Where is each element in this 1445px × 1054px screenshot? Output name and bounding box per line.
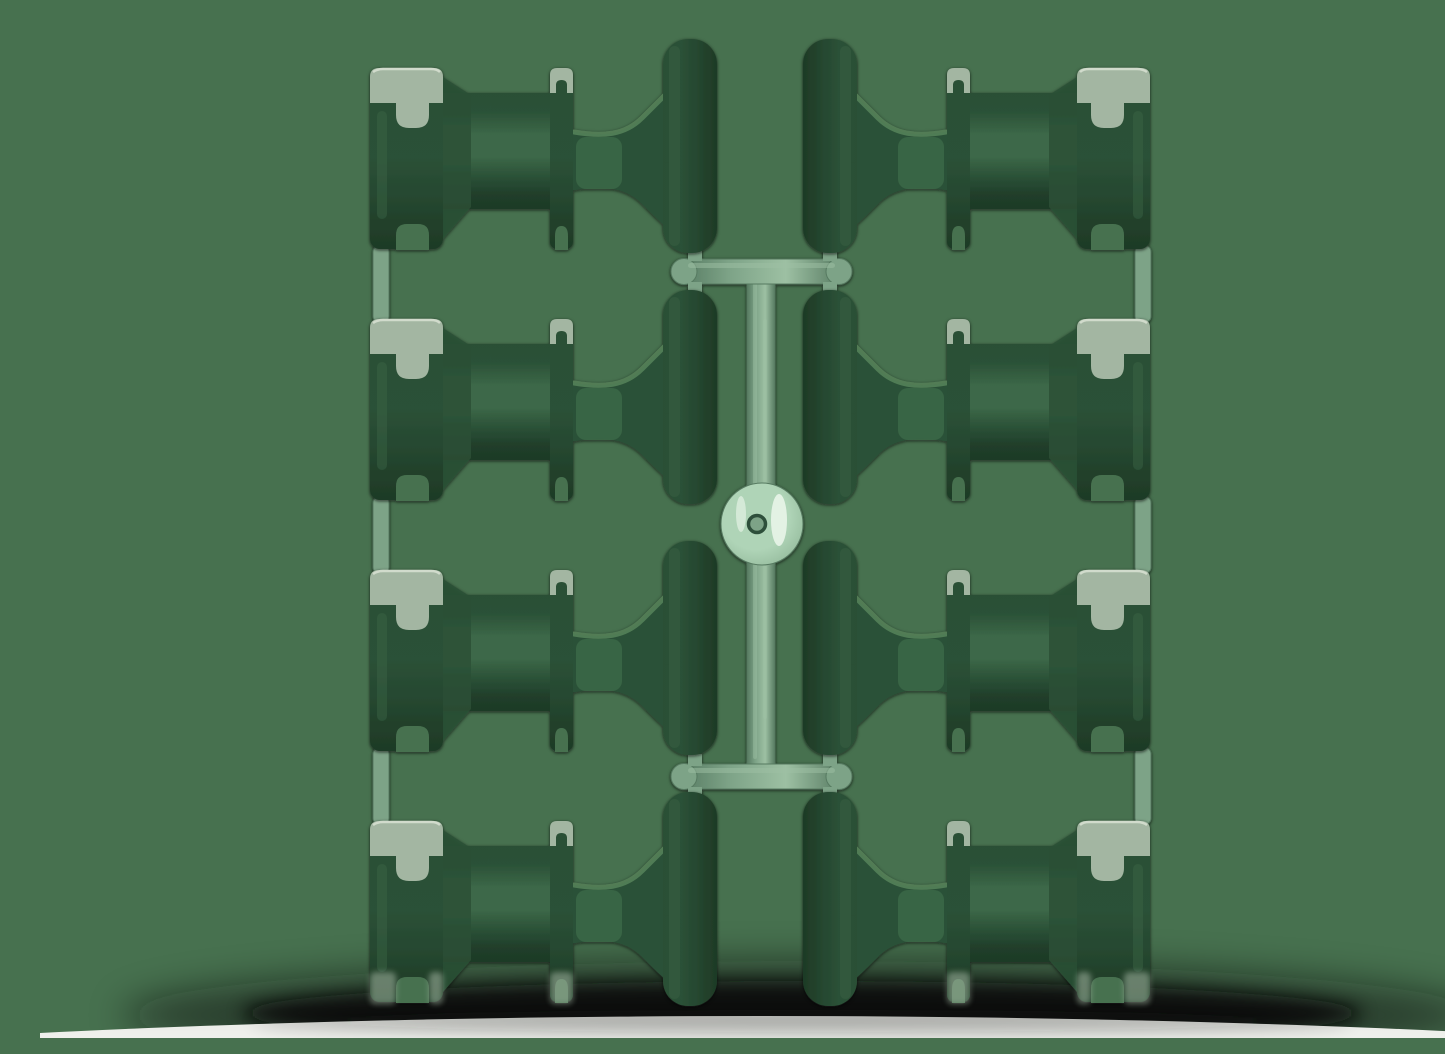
- runner-crossbar: [680, 259, 843, 284]
- bounce-patch: [1124, 972, 1150, 1004]
- edge-link: [1135, 747, 1151, 825]
- bounce-patch: [370, 972, 396, 1004]
- runner-tab: [688, 754, 702, 766]
- contact-shadow: [252, 1010, 1352, 1032]
- gate-highlight: [771, 494, 787, 546]
- bounce-patch: [1077, 972, 1091, 1004]
- gate-pin-mark: [749, 516, 766, 533]
- runner-end-bump: [671, 259, 697, 285]
- edge-link: [1135, 245, 1151, 323]
- edge-link: [1135, 496, 1151, 574]
- bounce-patch: [947, 972, 970, 1004]
- runner-end-bump: [826, 764, 852, 790]
- edge-link: [373, 245, 389, 323]
- sprue-scene: [40, 16, 1445, 1038]
- runner-end-bump: [826, 259, 852, 285]
- runner-end-bump: [671, 764, 697, 790]
- runner-tab: [823, 754, 837, 766]
- edge-link: [373, 496, 389, 574]
- product-photo: [40, 16, 1445, 1038]
- runner-crossbar: [680, 764, 843, 789]
- edge-link: [373, 747, 389, 825]
- bounce-patch: [550, 972, 573, 1004]
- bounce-patch: [429, 972, 443, 1004]
